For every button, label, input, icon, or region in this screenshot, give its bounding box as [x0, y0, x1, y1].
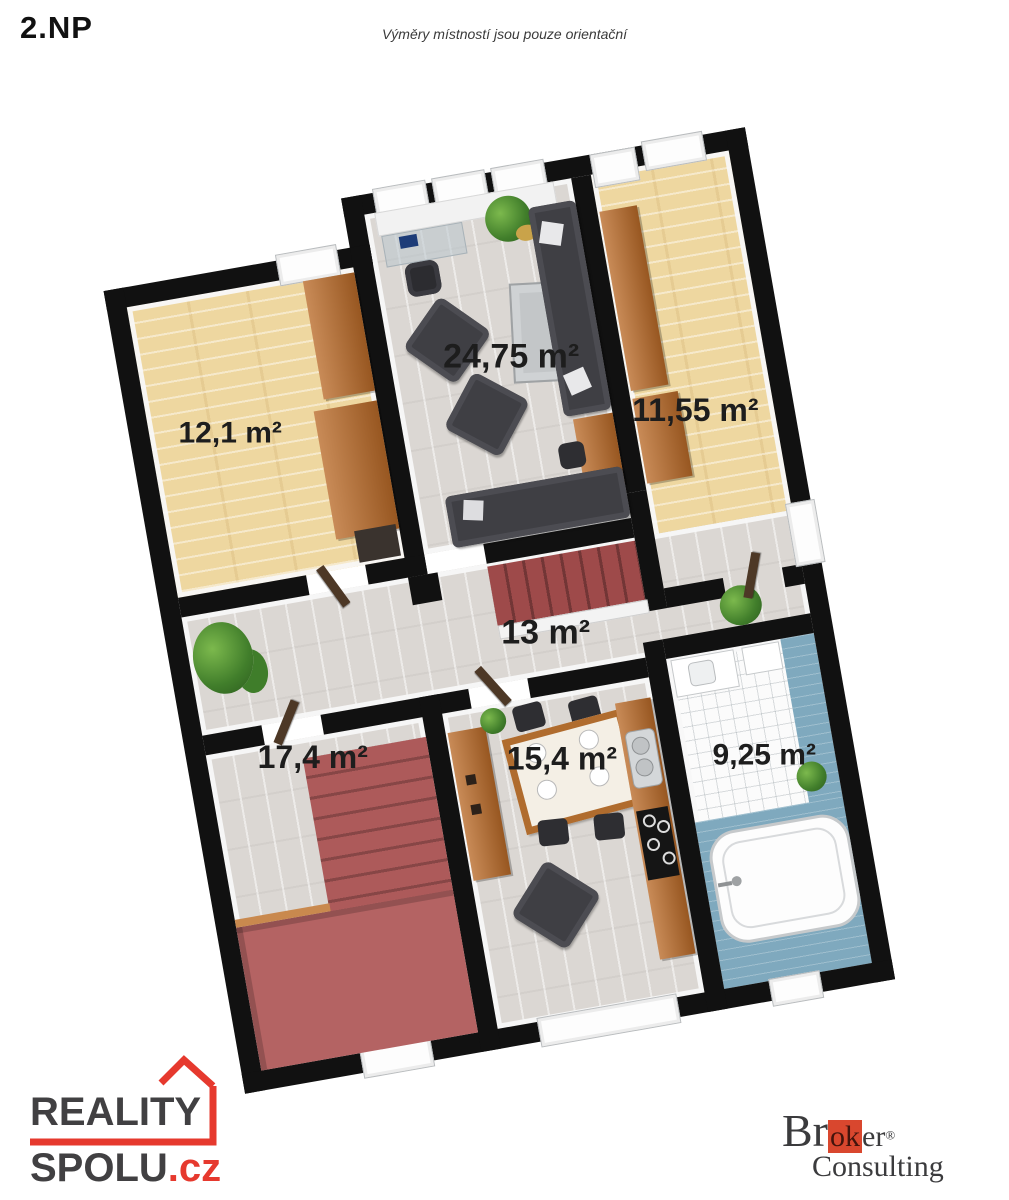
label-bathroom: 9,25 m²: [664, 738, 864, 772]
consulting-word: Consulting: [812, 1150, 944, 1183]
label-kitchen: 15,4 m²: [462, 741, 662, 778]
reality-spolu-suffix: .cz: [168, 1146, 221, 1190]
label-living-room: 24,75 m²: [411, 337, 611, 376]
wall-column-stub: [408, 572, 442, 605]
reality-spolu-word2: SPOLU.cz: [30, 1148, 221, 1188]
sideboard-decor-2: [470, 803, 482, 815]
reality-spolu-logo: REALITY SPOLU.cz: [28, 1086, 248, 1196]
wall-bedroom-right-bottom-b: [782, 564, 805, 587]
floor-plan: 12,1 m² 24,75 m² 11,55 m² 13 m² 17,4 m² …: [95, 127, 895, 1093]
washbasin-bowl: [687, 659, 717, 687]
label-bedroom-left: 12,1 m²: [140, 416, 320, 450]
label-room-lower-left: 17,4 m²: [213, 739, 413, 776]
label-bedroom-right: 11,55 m²: [595, 392, 795, 429]
floor-label: 2.NP: [20, 10, 93, 46]
living-desk-chair: [557, 440, 587, 470]
dining-chair-4: [593, 812, 626, 841]
reality-spolu-word1: REALITY: [30, 1092, 201, 1132]
label-hallway: 13 m²: [446, 614, 646, 653]
sofa-bottom-pillow: [463, 500, 484, 521]
office-chair: [404, 259, 443, 298]
disclaimer-text: Výměry místností jsou pouze orientační: [382, 26, 627, 42]
reality-spolu-word2-text: SPOLU: [30, 1146, 168, 1190]
sofa-pillow-1: [539, 221, 564, 246]
broker-consulting-logo: Broker® Consulting: [782, 1096, 1002, 1196]
broker-line2: Consulting: [812, 1136, 944, 1187]
dining-chair-3: [537, 818, 570, 847]
